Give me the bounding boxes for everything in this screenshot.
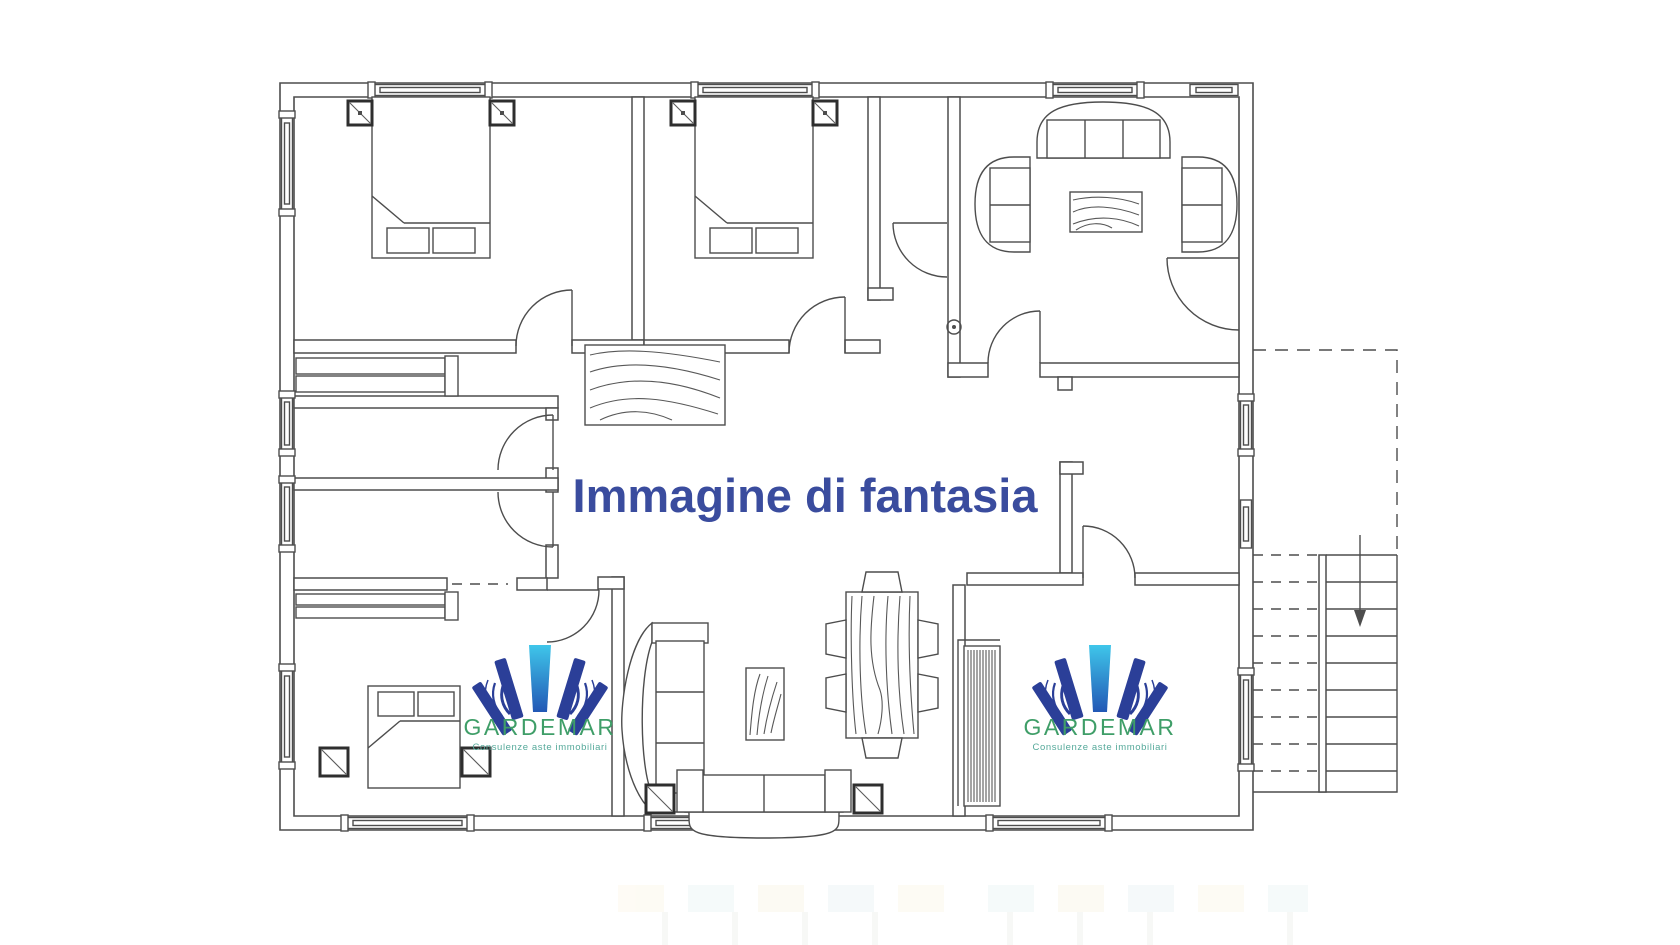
wall-h2-stub <box>845 340 880 353</box>
window-bottom-1 <box>341 815 474 831</box>
wall-v5-hook <box>1060 462 1083 474</box>
wall-v3 <box>948 97 960 377</box>
stair-treads-dashed <box>1253 555 1319 771</box>
bottom-sofa-horizontal <box>677 770 851 838</box>
wall-bath1-top <box>294 396 558 408</box>
window-left-1 <box>279 111 295 216</box>
gardemar-name-right: GARDEMAR <box>1024 714 1177 740</box>
wall-v2-hook <box>868 288 893 300</box>
sofa-side-table-right <box>854 785 882 813</box>
window-left-2 <box>279 391 295 456</box>
wall-h8b <box>1040 363 1239 377</box>
dining-chair-left2 <box>826 674 846 712</box>
wall-bath2-right <box>546 545 558 578</box>
door-corridor-entry <box>893 223 947 277</box>
dining-chair-left1 <box>826 620 846 658</box>
door-stair-lobby <box>1167 258 1239 330</box>
gardemar-tagline-left: Consulenze aste immobiliari <box>472 742 607 753</box>
wall-v1 <box>632 97 644 340</box>
door-bedroom1 <box>516 290 572 346</box>
wall-bath1-right-a <box>546 408 558 420</box>
dining-chair-bottom <box>862 738 902 758</box>
screenshot-root: Immagine di fantasia GARDEMAR Consulenze… <box>0 0 1680 945</box>
bed-bedroom3 <box>368 686 460 788</box>
door-gap-right-wall <box>1240 256 1252 332</box>
dining-chair-right1 <box>918 620 938 658</box>
nightstand-b1-right <box>490 101 514 125</box>
stair-stringer <box>1319 555 1326 792</box>
door-bedroom2 <box>789 297 845 353</box>
window-bottom-3 <box>986 815 1112 831</box>
fantasy-watermark-text: Immagine di fantasia <box>573 469 1039 522</box>
nightstand-b3-left <box>320 748 348 776</box>
window-left-3 <box>279 476 295 552</box>
window-right-1 <box>1238 394 1254 456</box>
dining-chair-top <box>862 572 902 592</box>
nightstand-b2-left <box>671 101 695 125</box>
hatched-wardrobe <box>958 640 1000 806</box>
wall-v6 <box>953 585 965 816</box>
window-top-4 <box>1190 85 1238 96</box>
wall-v2 <box>868 97 880 300</box>
wall-stub-hall <box>517 578 547 590</box>
gardemar-tagline-right: Consulenze aste immobiliari <box>1032 742 1167 753</box>
wardrobe-shelf-lower <box>296 592 458 620</box>
wall-bath-mid <box>294 478 558 490</box>
bed-bedroom1 <box>372 97 490 258</box>
window-right-2 <box>1241 500 1252 548</box>
wall-h8a <box>948 363 988 377</box>
bottom-artifact-strip <box>618 885 1308 945</box>
door-bathroom1 <box>498 415 553 470</box>
hall-rug <box>585 345 725 425</box>
floor-plan-svg: Immagine di fantasia GARDEMAR Consulenze… <box>0 0 1680 945</box>
dining-chair-right2 <box>918 674 938 712</box>
door-bottom-right-room <box>1083 526 1135 578</box>
living-armchair-right <box>1182 157 1237 252</box>
stair-upper-flight-dashed <box>1253 350 1397 555</box>
gardemar-name-left: GARDEMAR <box>464 714 617 740</box>
wall-h8-tick <box>1058 377 1072 390</box>
window-left-4 <box>279 664 295 769</box>
gardemar-logo-left: GARDEMAR Consulenze aste immobiliari <box>464 645 617 753</box>
gardemar-logo-right: GARDEMAR Consulenze aste immobiliari <box>1024 645 1177 753</box>
staircase <box>1253 350 1397 792</box>
door-bedroom3 <box>547 590 599 642</box>
window-top-2 <box>691 82 819 98</box>
wall-v4-hook <box>598 577 624 589</box>
bed-bedroom2 <box>695 97 813 258</box>
door-bathroom2 <box>498 492 553 547</box>
wall-h7a <box>967 573 1083 585</box>
living-armchair-left <box>975 157 1030 252</box>
living-coffee-table <box>1070 192 1142 232</box>
wardrobe-shelf-upper <box>296 356 458 396</box>
window-top-3 <box>1046 82 1144 98</box>
stair-treads-solid <box>1326 555 1397 771</box>
sofa-side-table-left <box>646 785 674 813</box>
stair-down-arrow <box>1354 535 1366 627</box>
wall-v5 <box>1060 462 1072 573</box>
wall-v4 <box>612 577 624 816</box>
door-knob-dot <box>952 325 956 329</box>
nightstand-b1-left <box>348 101 372 125</box>
living-sofa <box>1037 102 1170 158</box>
nightstand-b2-right <box>813 101 837 125</box>
wall-h1a <box>294 340 516 353</box>
window-top-1 <box>368 82 492 98</box>
dining-set <box>826 572 938 758</box>
side-table-wood <box>746 668 784 740</box>
window-right-3 <box>1238 668 1254 771</box>
wall-h7b <box>1135 573 1239 585</box>
wall-bath2-bottom <box>294 578 447 590</box>
door-living-room <box>988 311 1040 363</box>
